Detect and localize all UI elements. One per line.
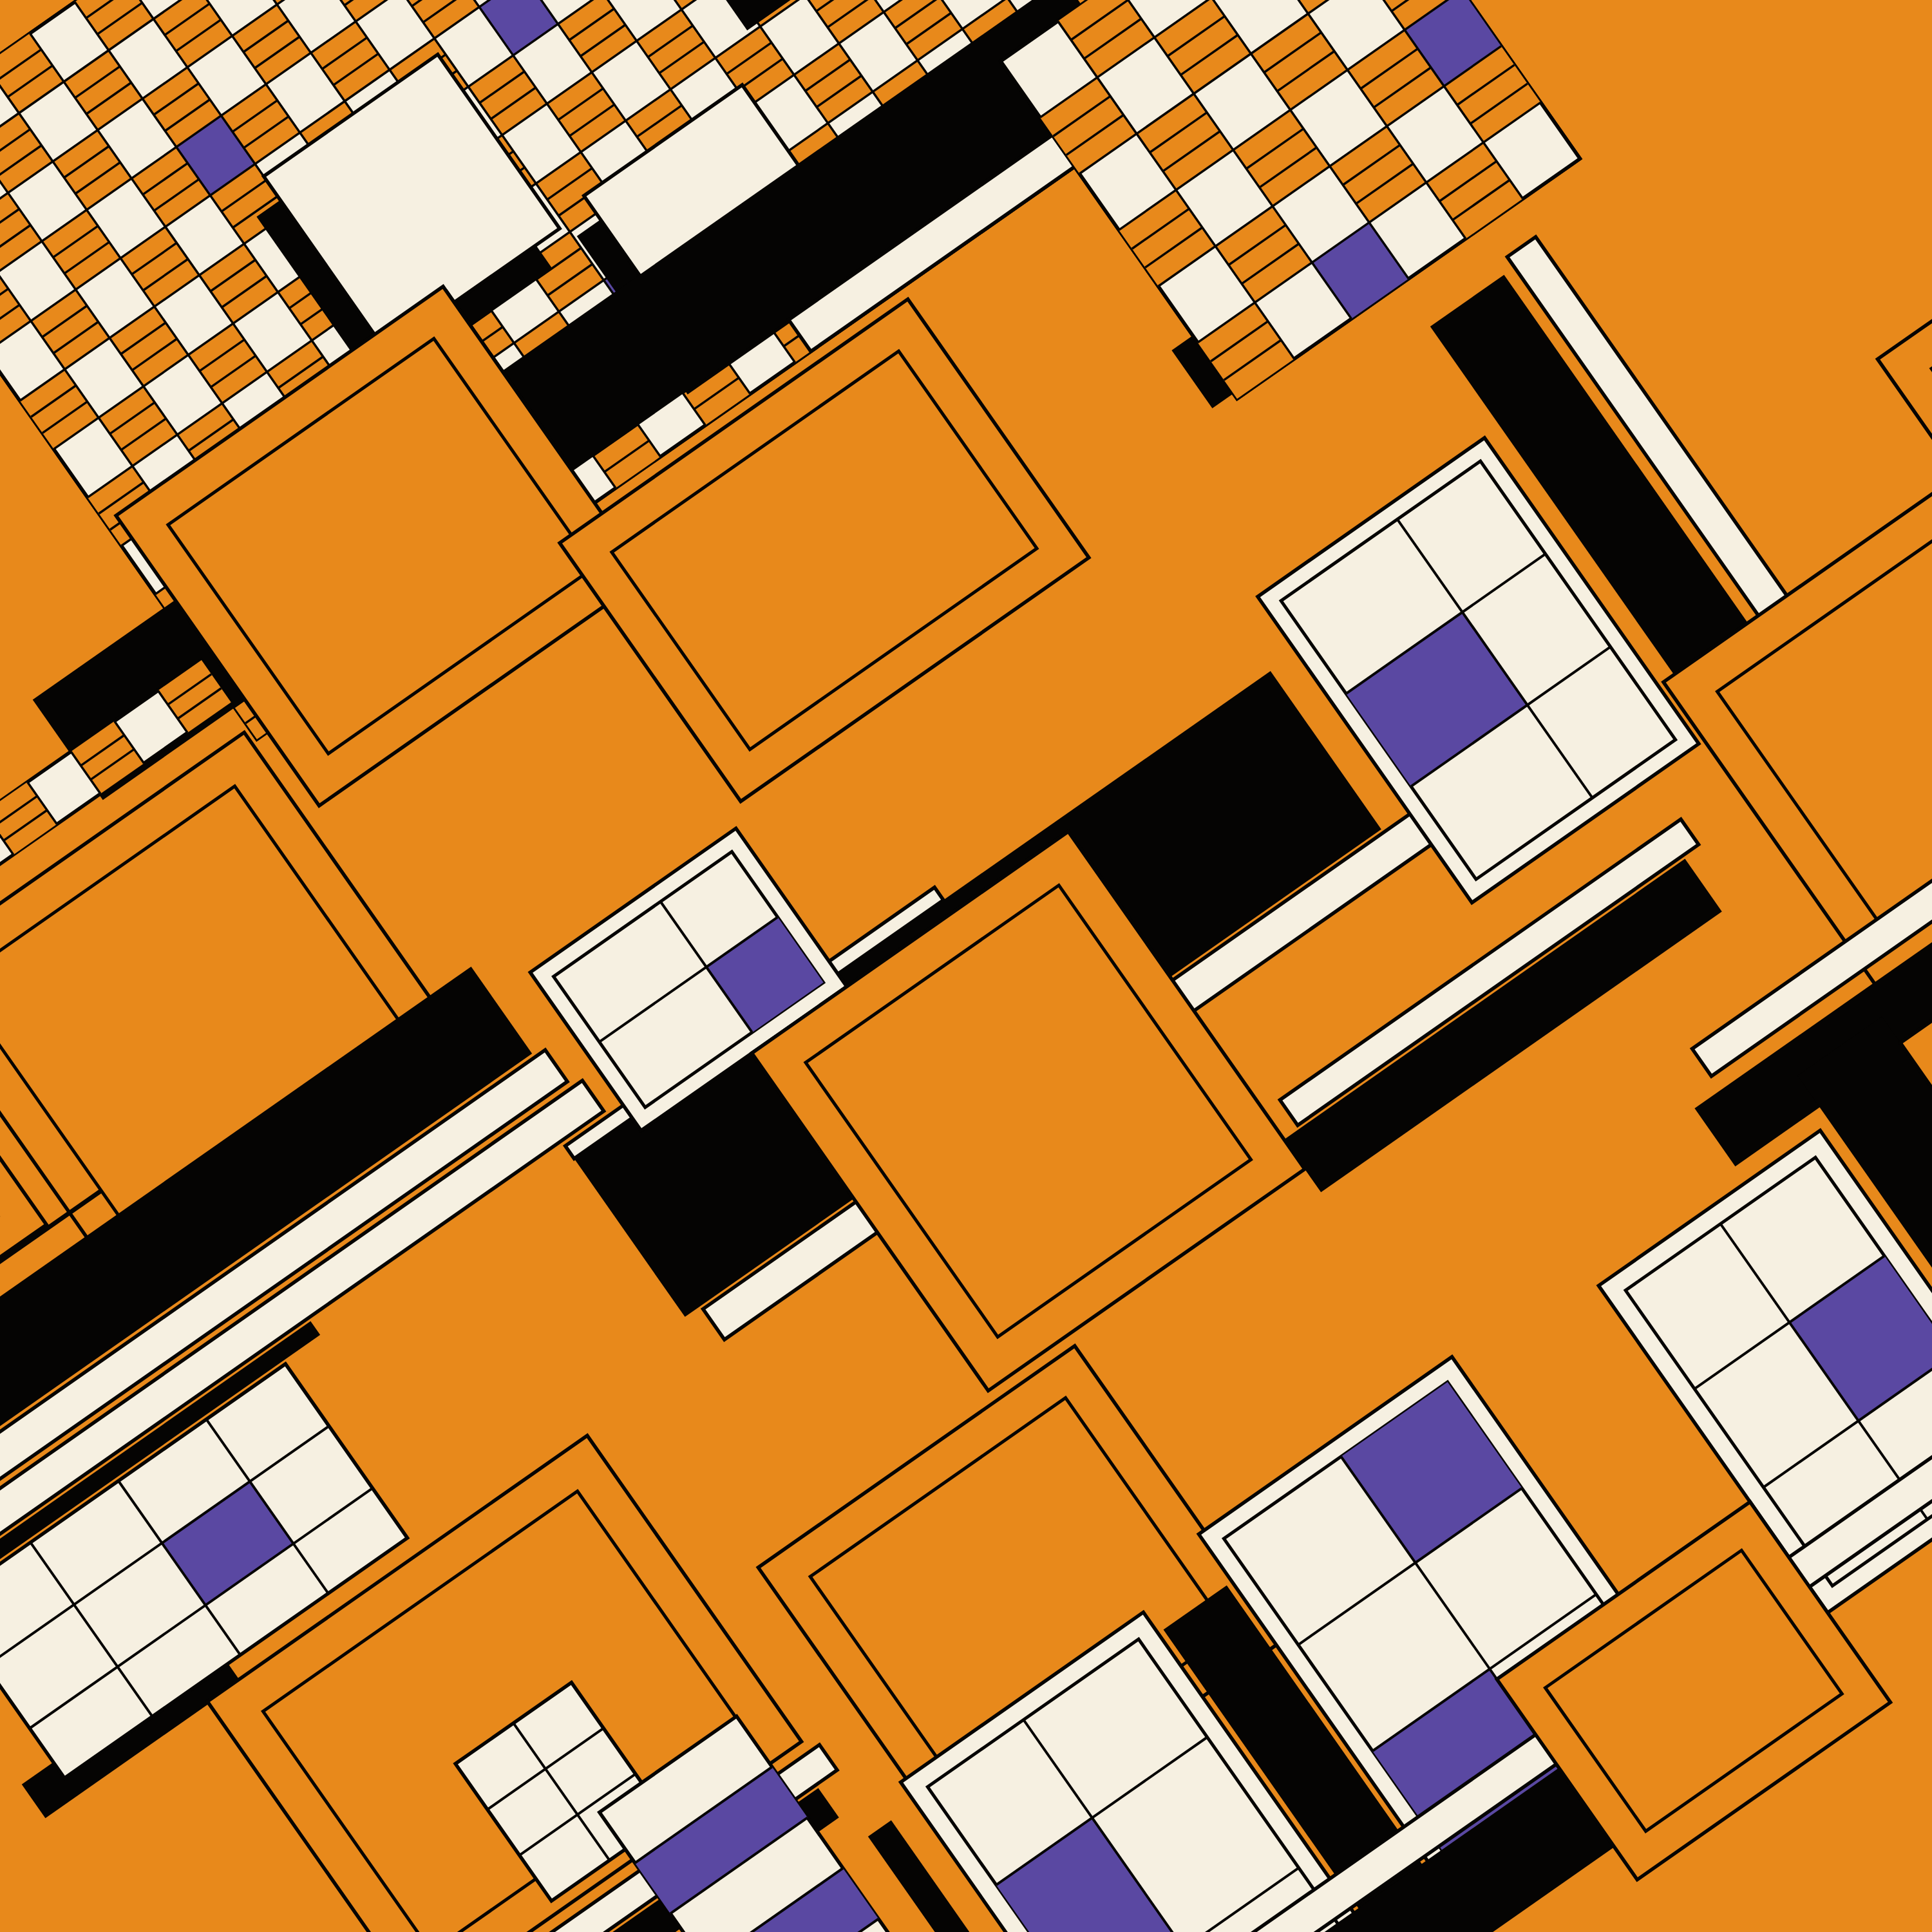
abstract-artwork [0, 0, 1932, 1932]
rotated-composition [0, 0, 1932, 1932]
artwork-canvas [0, 0, 1932, 1932]
